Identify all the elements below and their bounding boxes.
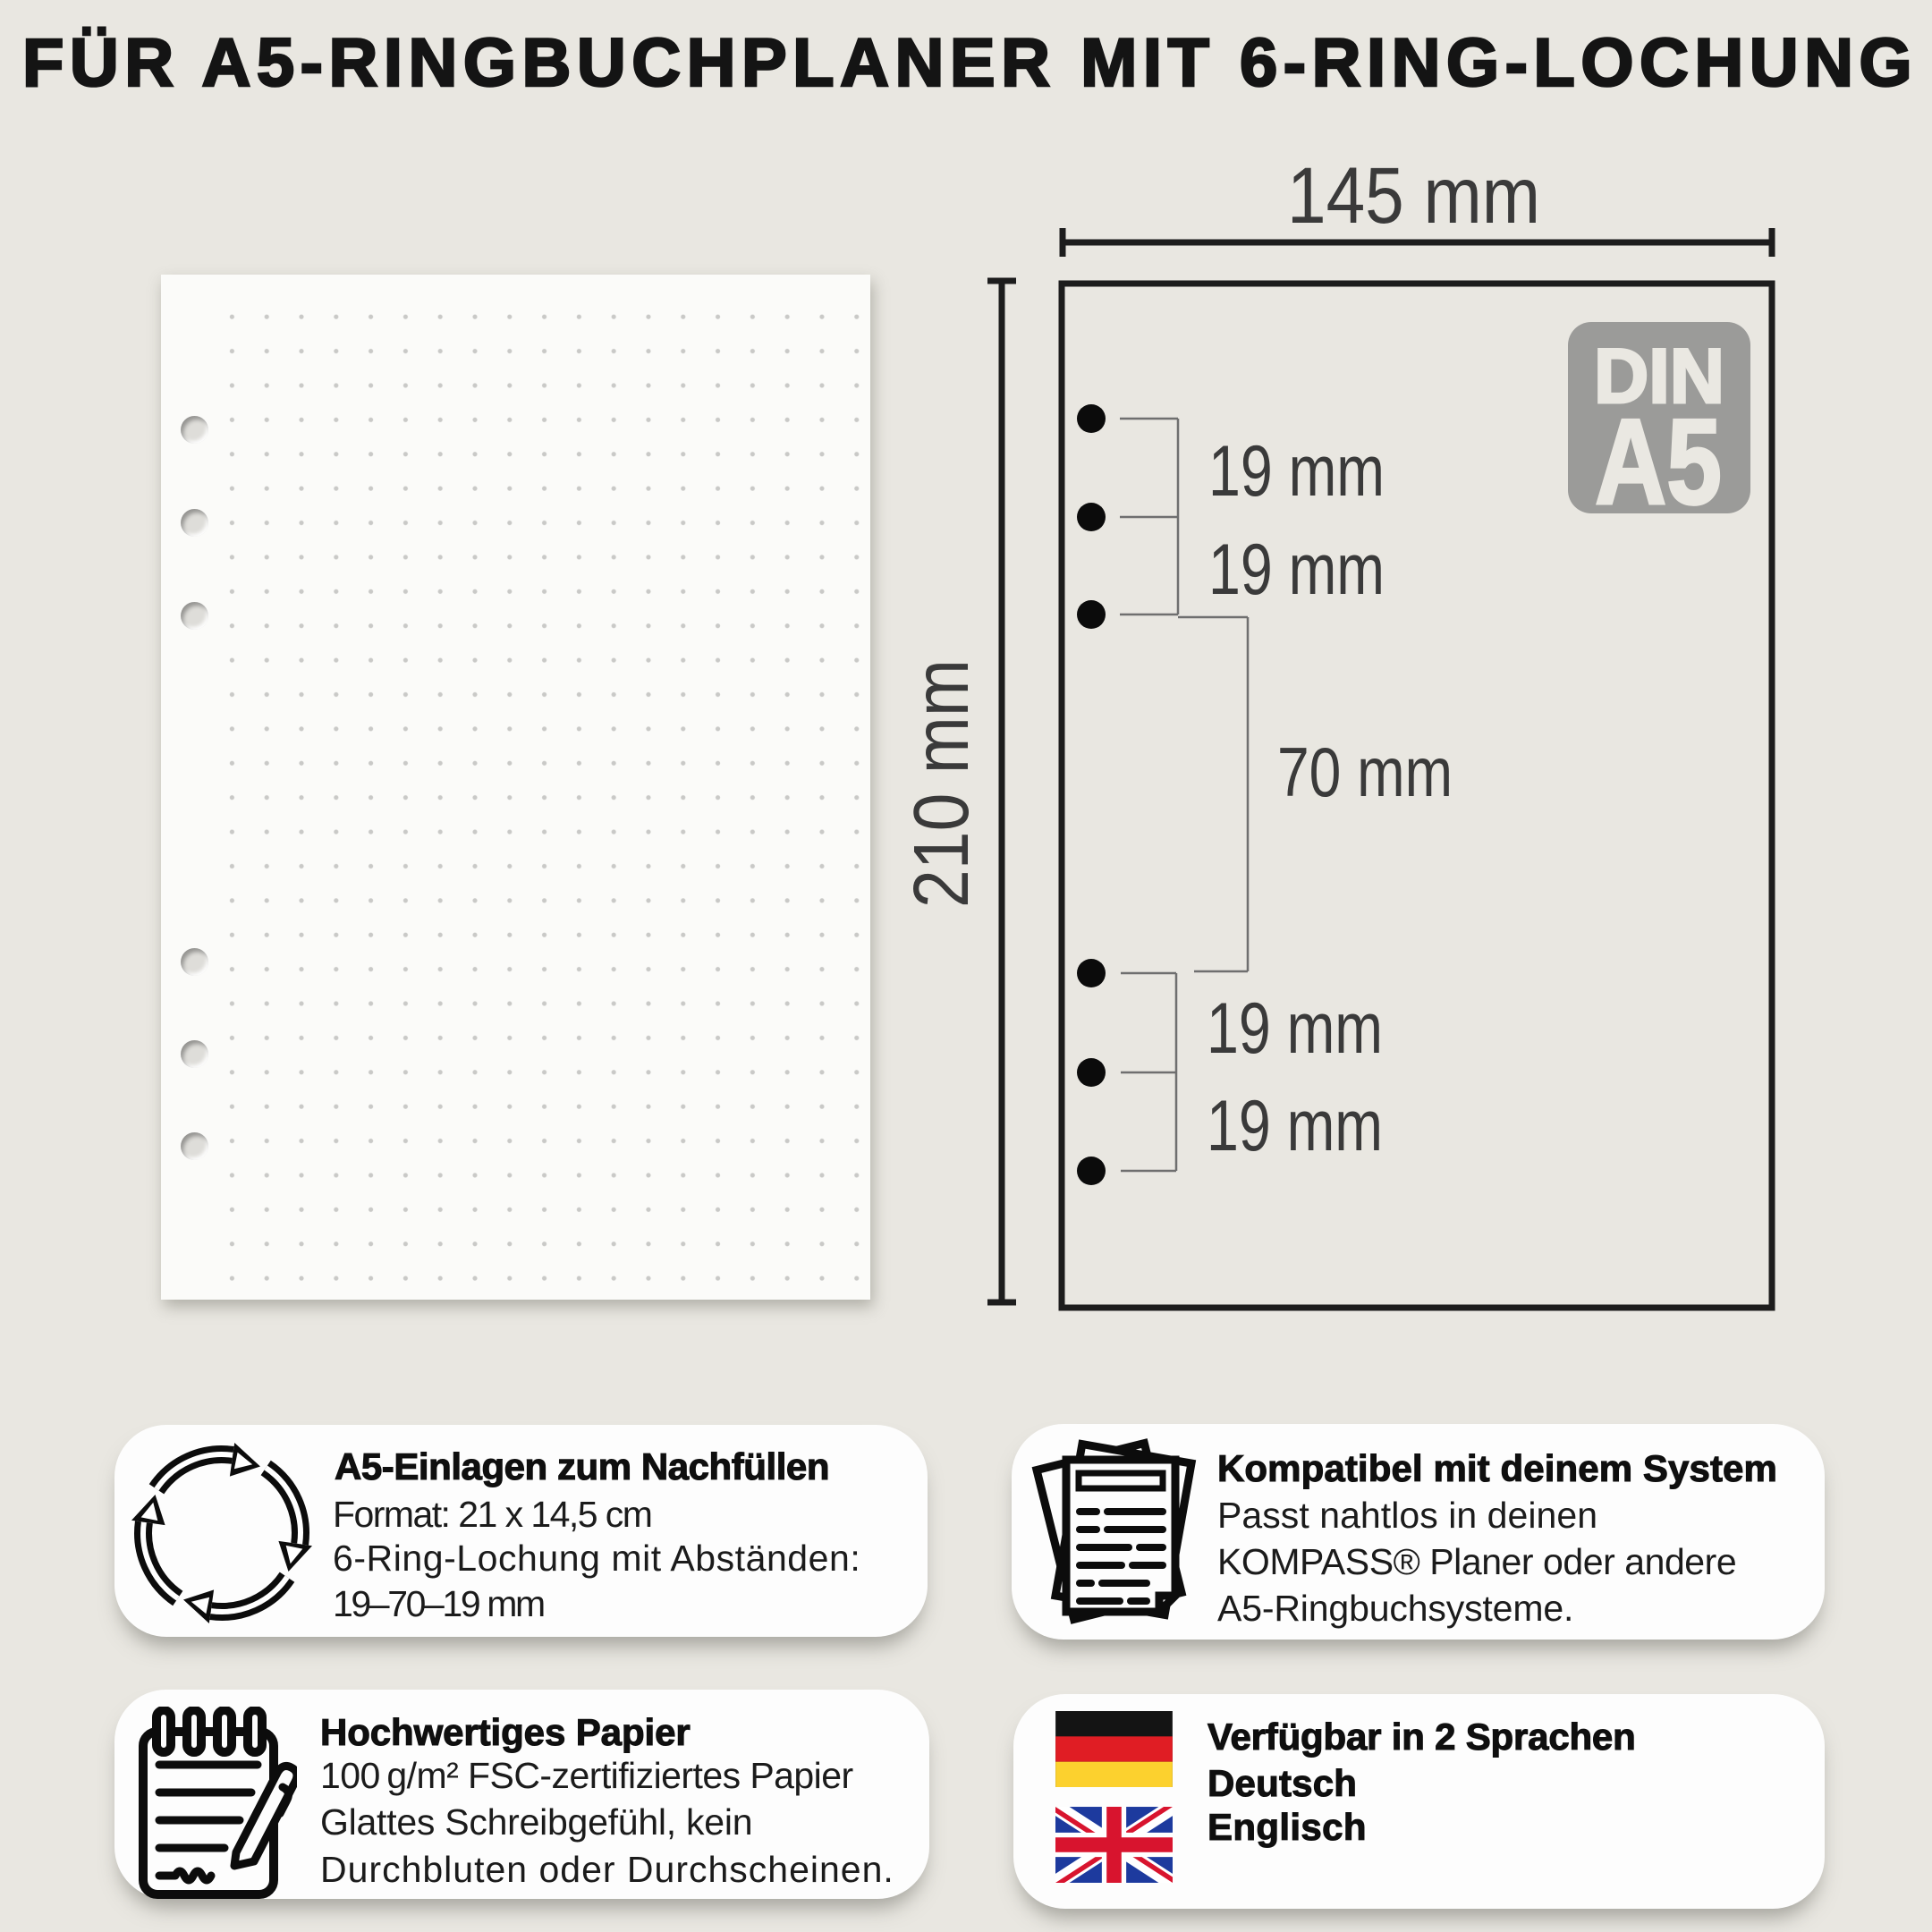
svg-text:19 mm: 19 mm — [1207, 1086, 1383, 1166]
svg-text:70 mm: 70 mm — [1277, 733, 1453, 811]
svg-text:19 mm: 19 mm — [1208, 431, 1385, 512]
svg-text:19 mm: 19 mm — [1208, 530, 1385, 610]
svg-text:145 mm: 145 mm — [1287, 150, 1540, 240]
svg-text:19 mm: 19 mm — [1207, 988, 1383, 1069]
svg-text:210 mm: 210 mm — [898, 659, 985, 908]
svg-text:A5: A5 — [1595, 394, 1722, 530]
